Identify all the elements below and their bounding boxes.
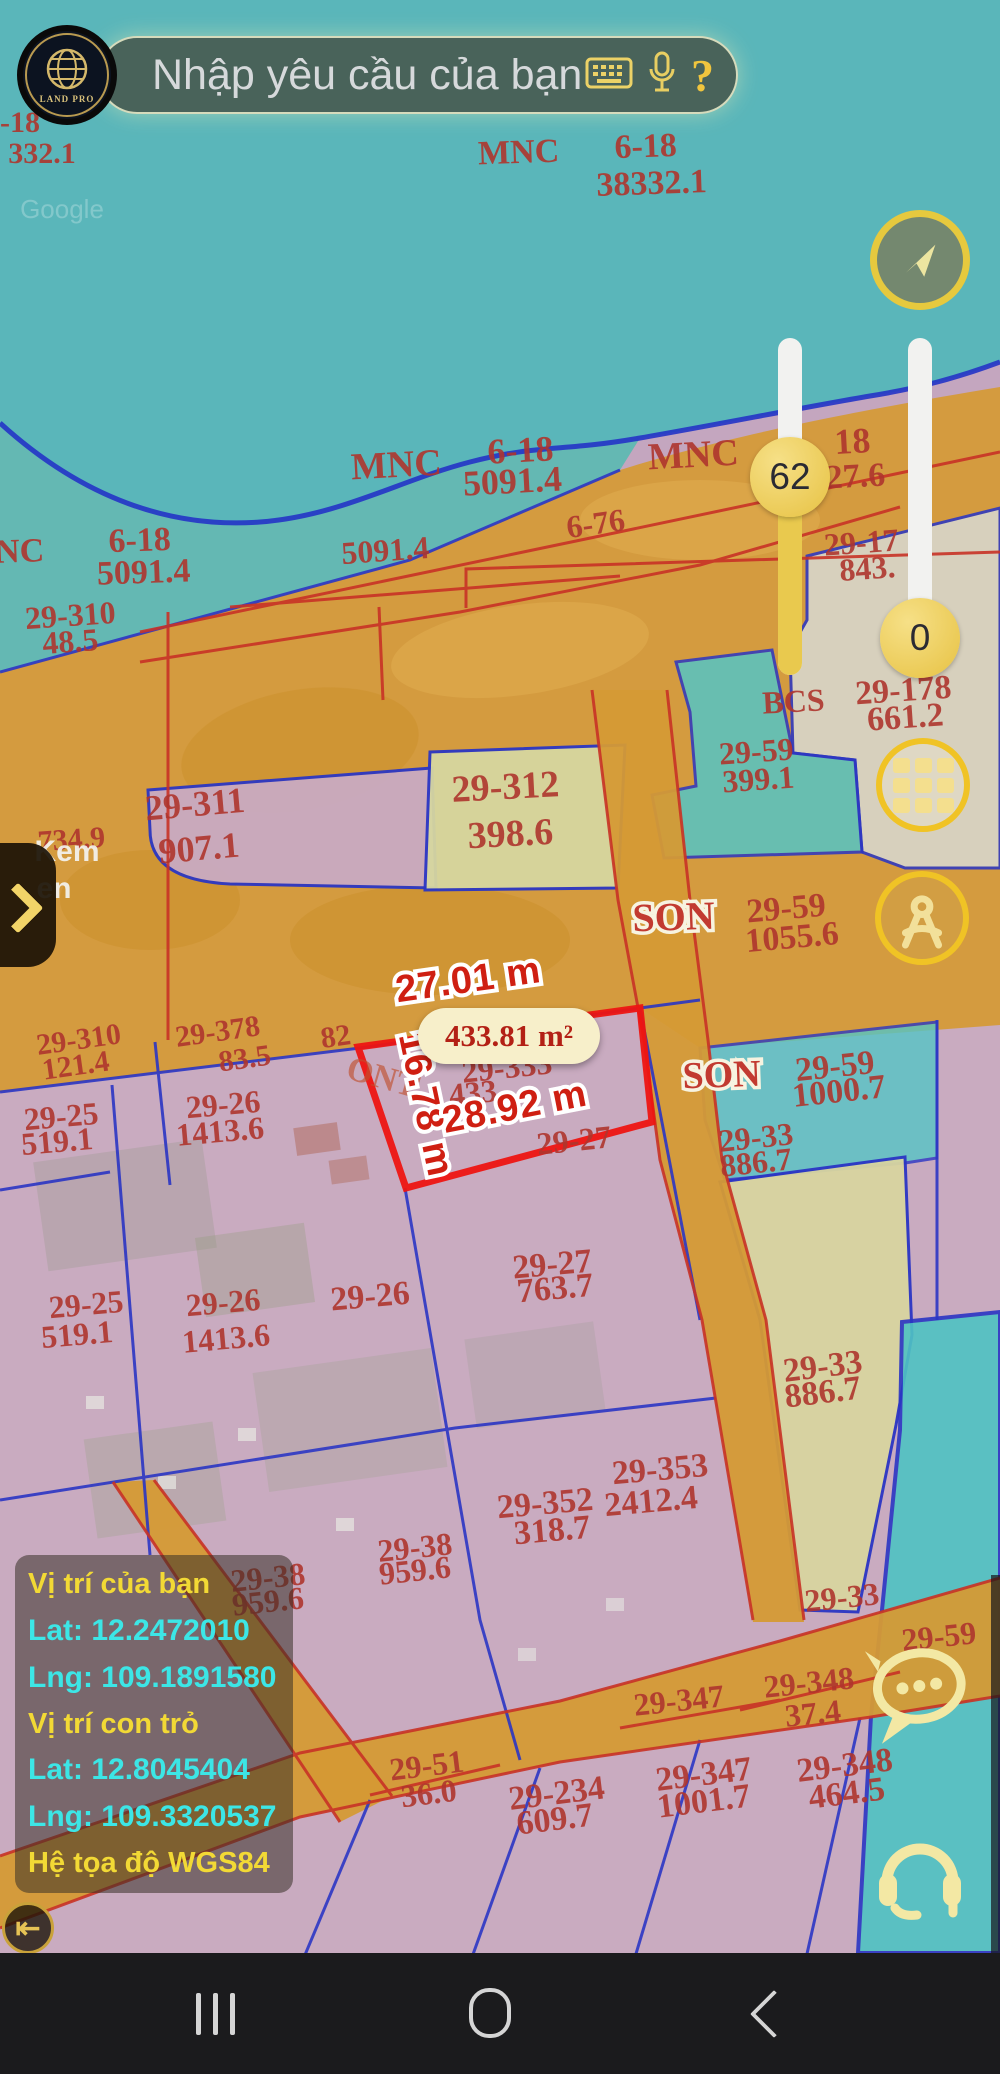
- opacity-slider-knob[interactable]: 62: [750, 437, 830, 517]
- area-measurement-bubble: 433.81 m²: [418, 1008, 600, 1064]
- map-label: 886.7: [718, 1140, 793, 1183]
- chat-button[interactable]: [855, 1626, 985, 1761]
- map-label: MNC: [477, 133, 559, 173]
- map-label: 843.: [838, 548, 896, 588]
- recents-button[interactable]: [196, 1993, 235, 2035]
- map-label: 29-312: [451, 763, 561, 811]
- map-label: 5091.4: [96, 552, 191, 592]
- chevron-right-icon: [0, 883, 43, 934]
- your-location-lng: Lng: 109.1891580: [28, 1661, 293, 1695]
- map-label: 29-26: [184, 1281, 262, 1323]
- layers-button[interactable]: [876, 738, 970, 832]
- zoom-slider-track[interactable]: [908, 338, 932, 638]
- land-pro-logo[interactable]: LAND PRO: [17, 25, 117, 125]
- map-label: 5091.4: [340, 529, 430, 571]
- map-label: 763.7: [515, 1267, 594, 1311]
- datum-label: Hệ tọa độ WGS84: [28, 1847, 293, 1880]
- home-button[interactable]: [469, 1988, 511, 2038]
- cursor-location-title: Vị trí con trỏ: [28, 1708, 293, 1741]
- map-label: 332.1: [8, 137, 76, 170]
- opacity-slider-value: 62: [769, 456, 810, 498]
- map-label: 37.4: [783, 1692, 842, 1734]
- logo-ring: [25, 33, 109, 117]
- area-value: 433.81 m²: [445, 1018, 573, 1054]
- map-label: 318.7: [512, 1509, 591, 1553]
- support-button[interactable]: [865, 1816, 975, 1931]
- map-label: 5091.4: [462, 458, 563, 503]
- map-label: 27.6: [825, 456, 886, 496]
- side-panel-toggle[interactable]: [0, 843, 56, 967]
- coordinates-info-box: Vị trí của bạn Lat: 12.2472010 Lng: 109.…: [15, 1555, 293, 1893]
- cursor-location-lng: Lng: 109.3320537: [28, 1800, 293, 1834]
- map-label: 519.1: [20, 1120, 95, 1162]
- arrow-to-bar-icon: ⇤: [15, 1911, 40, 1946]
- map-label: 1413.6: [175, 1109, 266, 1153]
- undo-point-button[interactable]: ⇤: [2, 1902, 54, 1954]
- map-label: MNC: [647, 432, 740, 479]
- map-label: 959.6: [377, 1548, 452, 1591]
- map-label: Google: [20, 194, 104, 224]
- tools-button[interactable]: [875, 871, 969, 965]
- cursor-location-lat: Lat: 12.8045404: [28, 1753, 293, 1787]
- keyboard-icon[interactable]: [585, 55, 633, 96]
- zoom-slider-value: 0: [910, 617, 931, 659]
- your-location-title: Vị trí của bạn: [28, 1568, 293, 1601]
- search-input[interactable]: Nhập yêu cầu của bạn: [152, 51, 585, 100]
- your-location-lat: Lat: 12.2472010: [28, 1614, 293, 1648]
- grid-icon: [893, 758, 954, 813]
- map-label: 1413.6: [181, 1316, 272, 1360]
- zoom-slider-knob[interactable]: 0: [880, 598, 960, 678]
- map-label: MNC: [350, 442, 443, 489]
- android-nav-bar: [0, 1953, 1000, 2074]
- chat-bubble-icon: [855, 1626, 985, 1756]
- screen-edge-shadow: [991, 1575, 1000, 1953]
- help-icon[interactable]: ?: [691, 49, 714, 102]
- map-label: 36.0: [399, 1772, 459, 1815]
- map-label: 29-26: [329, 1275, 411, 1319]
- map-label: NC: [0, 532, 45, 571]
- search-bar[interactable]: Nhập yêu cầu của bạn: [98, 36, 738, 114]
- map-label: 38332.1: [596, 163, 708, 204]
- navigation-arrow-icon: [885, 225, 955, 295]
- logo-text: LAND PRO: [40, 94, 95, 104]
- mic-icon[interactable]: [649, 51, 675, 100]
- back-button[interactable]: [750, 1990, 798, 2038]
- land-pro-map-screen: -18332.1MNC6-1838332.1GoogleMNC6-185091.…: [0, 0, 1000, 2074]
- map-label: 907.1: [157, 825, 241, 872]
- drafting-compass-icon: [881, 877, 963, 959]
- map-label: BCS: [761, 681, 825, 720]
- map-label: SON: [682, 1053, 762, 1098]
- map-label: 48.5: [41, 621, 99, 661]
- map-label: 519.1: [40, 1313, 115, 1355]
- headset-icon: [865, 1816, 975, 1926]
- map-label: 18: [833, 420, 871, 462]
- locate-button[interactable]: [870, 210, 970, 310]
- map-label: 661.2: [866, 696, 945, 738]
- map-label: SON: [632, 893, 716, 941]
- map-label: 398.6: [467, 811, 555, 857]
- map-label: 82: [319, 1018, 353, 1055]
- map-label: 6-18: [614, 127, 678, 166]
- map-label: 399.1: [721, 759, 795, 800]
